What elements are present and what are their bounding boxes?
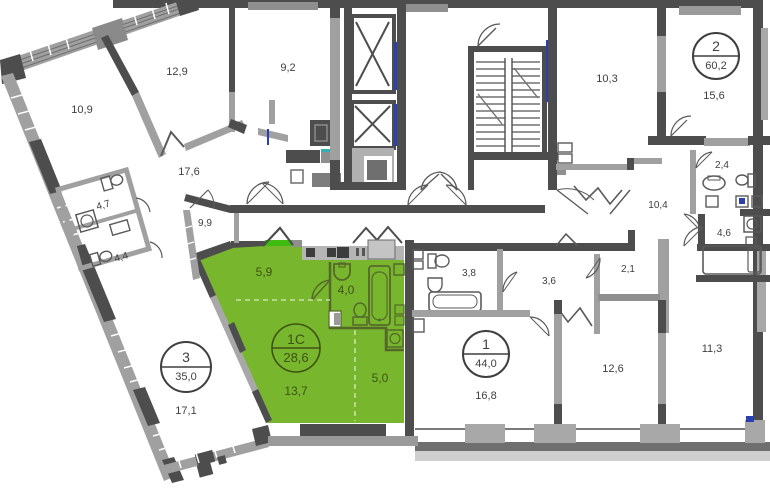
svg-text:17,1: 17,1 bbox=[175, 405, 196, 417]
svg-text:11,3: 11,3 bbox=[702, 343, 723, 355]
svg-text:5,0: 5,0 bbox=[372, 371, 389, 385]
svg-text:10,4: 10,4 bbox=[648, 200, 668, 211]
svg-text:15,6: 15,6 bbox=[703, 90, 724, 102]
svg-text:35,0: 35,0 bbox=[175, 371, 196, 383]
svg-text:10,3: 10,3 bbox=[596, 73, 617, 85]
svg-text:10,9: 10,9 bbox=[71, 104, 92, 116]
svg-text:60,2: 60,2 bbox=[705, 60, 726, 72]
svg-text:3,6: 3,6 bbox=[542, 276, 556, 287]
svg-text:12,6: 12,6 bbox=[602, 363, 623, 375]
svg-text:44,0: 44,0 bbox=[475, 358, 496, 370]
svg-text:9,9: 9,9 bbox=[198, 218, 212, 229]
svg-text:9,2: 9,2 bbox=[280, 62, 295, 74]
svg-text:2: 2 bbox=[712, 38, 720, 54]
svg-text:28,6: 28,6 bbox=[283, 350, 308, 365]
svg-text:4,0: 4,0 bbox=[338, 283, 355, 297]
svg-text:1C: 1C bbox=[287, 331, 305, 347]
svg-text:1: 1 bbox=[482, 336, 490, 352]
svg-text:16,8: 16,8 bbox=[475, 390, 496, 402]
svg-text:3,8: 3,8 bbox=[462, 268, 476, 279]
svg-text:4,6: 4,6 bbox=[717, 228, 731, 239]
svg-text:2,1: 2,1 bbox=[621, 264, 635, 275]
svg-text:3: 3 bbox=[182, 349, 190, 365]
svg-text:2,4: 2,4 bbox=[715, 160, 729, 171]
svg-text:5,9: 5,9 bbox=[256, 265, 273, 279]
svg-text:12,9: 12,9 bbox=[166, 66, 187, 78]
svg-text:17,6: 17,6 bbox=[178, 166, 199, 178]
svg-text:13,7: 13,7 bbox=[284, 384, 308, 398]
